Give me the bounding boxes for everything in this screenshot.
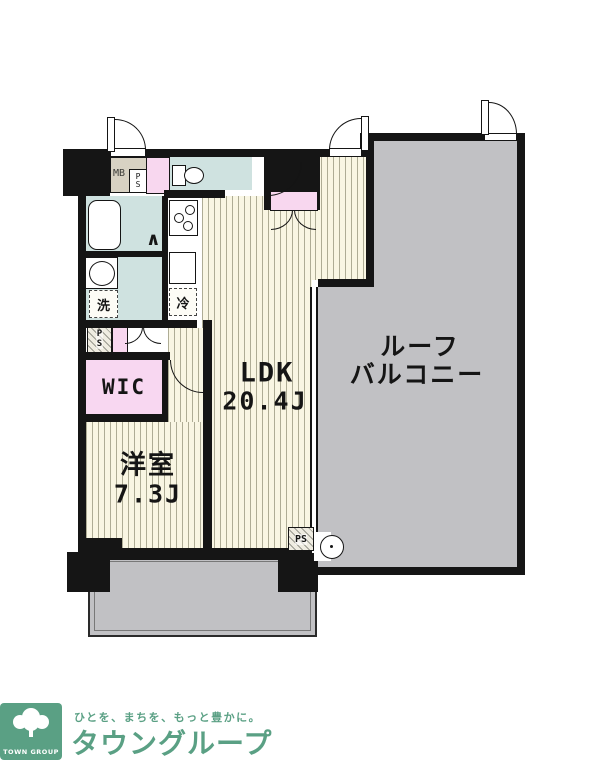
wall xyxy=(86,352,170,360)
balcony-wall-bottom xyxy=(312,567,525,575)
balcony-pipe-space: PS xyxy=(288,527,314,551)
balcony-door xyxy=(481,100,489,135)
meter-pipe-space: P S xyxy=(129,169,147,193)
washing-machine-space: 洗 xyxy=(89,290,118,318)
washing-machine-label: 洗 xyxy=(97,295,110,314)
toilet-bowl-icon xyxy=(184,167,204,184)
wall xyxy=(86,251,168,257)
wall xyxy=(162,352,168,422)
refrigerator-label: 冷 xyxy=(176,293,189,312)
roof-balcony-area xyxy=(318,287,378,567)
refrigerator-space: 冷 xyxy=(169,288,197,316)
balcony-wall-top xyxy=(360,133,484,141)
entry-pink-strip xyxy=(146,157,170,194)
wall-top-left-block xyxy=(63,149,110,196)
ldk-label: LDK xyxy=(240,358,295,389)
floor-plan: 洗 冷 MB P S P S xyxy=(0,0,602,760)
entrance-door-swing xyxy=(115,119,146,150)
balcony-wall-right xyxy=(517,133,525,575)
kitchen-sink-icon xyxy=(169,252,196,284)
wall-room-divider xyxy=(203,320,212,560)
wall-left xyxy=(78,190,86,560)
hall-door-swing xyxy=(143,327,161,344)
burner-icon xyxy=(183,221,193,231)
footer-brand: タウングループ xyxy=(71,722,272,760)
roof-balcony-label-line2: バルコニー xyxy=(350,355,485,391)
hall-pipe-space: P S xyxy=(87,326,112,353)
service-door-swing xyxy=(329,118,361,150)
western-room-size-label: 7.3J xyxy=(114,480,182,509)
balcony-door-swing xyxy=(489,102,517,134)
town-group-tree-icon xyxy=(7,706,55,740)
wall xyxy=(86,414,168,422)
ps-label: PS xyxy=(295,534,307,545)
ps-label-s: S xyxy=(97,339,102,349)
wic-label: WIC xyxy=(102,375,146,399)
wall xyxy=(162,196,168,320)
hall-door-swing xyxy=(125,327,143,344)
window-sash xyxy=(310,287,318,553)
service-door xyxy=(361,116,369,151)
western-room-label: 洋室 xyxy=(120,445,176,482)
entrance-door xyxy=(107,117,115,152)
town-group-caption: TOWN GROUP xyxy=(0,748,62,756)
bath-folding-door-icon: ∧ xyxy=(146,229,161,250)
bathtub-icon xyxy=(88,200,121,250)
meter-box-label: MB xyxy=(113,168,125,179)
stove-icon xyxy=(169,200,198,236)
ldk-size-label: 20.4J xyxy=(222,387,307,416)
washbasin-bowl-icon xyxy=(89,261,115,286)
balcony-wall-step xyxy=(318,279,374,287)
town-group-logo: TOWN GROUP xyxy=(0,703,62,760)
burner-icon xyxy=(185,205,195,215)
burner-icon xyxy=(174,213,184,223)
wall xyxy=(164,190,225,198)
balcony-wall-left xyxy=(366,141,374,287)
ps-label-s: S xyxy=(136,180,141,189)
pillar xyxy=(67,552,110,592)
drain-icon xyxy=(320,535,344,559)
